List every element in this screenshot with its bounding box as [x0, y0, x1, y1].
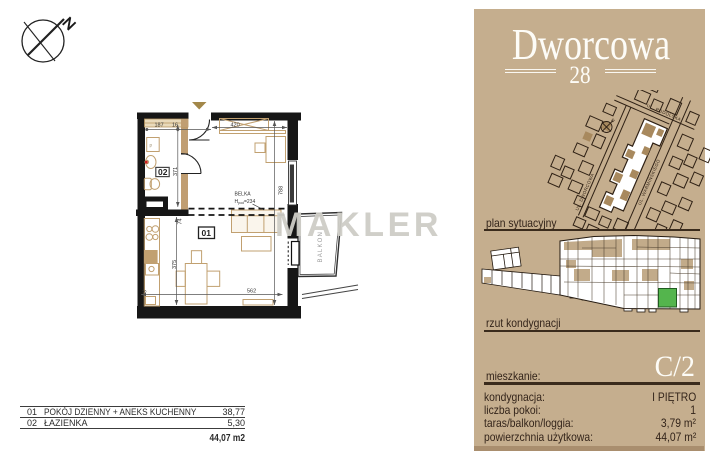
- svg-text:56: 56: [142, 289, 147, 294]
- svg-text:16: 16: [172, 123, 178, 129]
- svg-text:Hpod=234: Hpod=234: [235, 199, 256, 205]
- svg-text:371: 371: [173, 167, 179, 176]
- svg-text:UL. DWORCOWA: UL. DWORCOWA: [575, 172, 596, 211]
- svg-text:p: p: [150, 143, 153, 148]
- svg-text:02: 02: [158, 167, 168, 177]
- svg-text:187: 187: [155, 123, 164, 129]
- svg-text:BELKA: BELKA: [235, 192, 252, 198]
- svg-text:562: 562: [247, 289, 256, 295]
- svg-text:420: 420: [231, 123, 240, 129]
- svg-text:375: 375: [172, 260, 178, 269]
- svg-text:UL. PODOLSKA: UL. PODOLSKA: [646, 103, 682, 122]
- svg-text:74: 74: [178, 218, 184, 224]
- svg-text:788: 788: [279, 186, 285, 195]
- svg-text:01: 01: [202, 228, 212, 238]
